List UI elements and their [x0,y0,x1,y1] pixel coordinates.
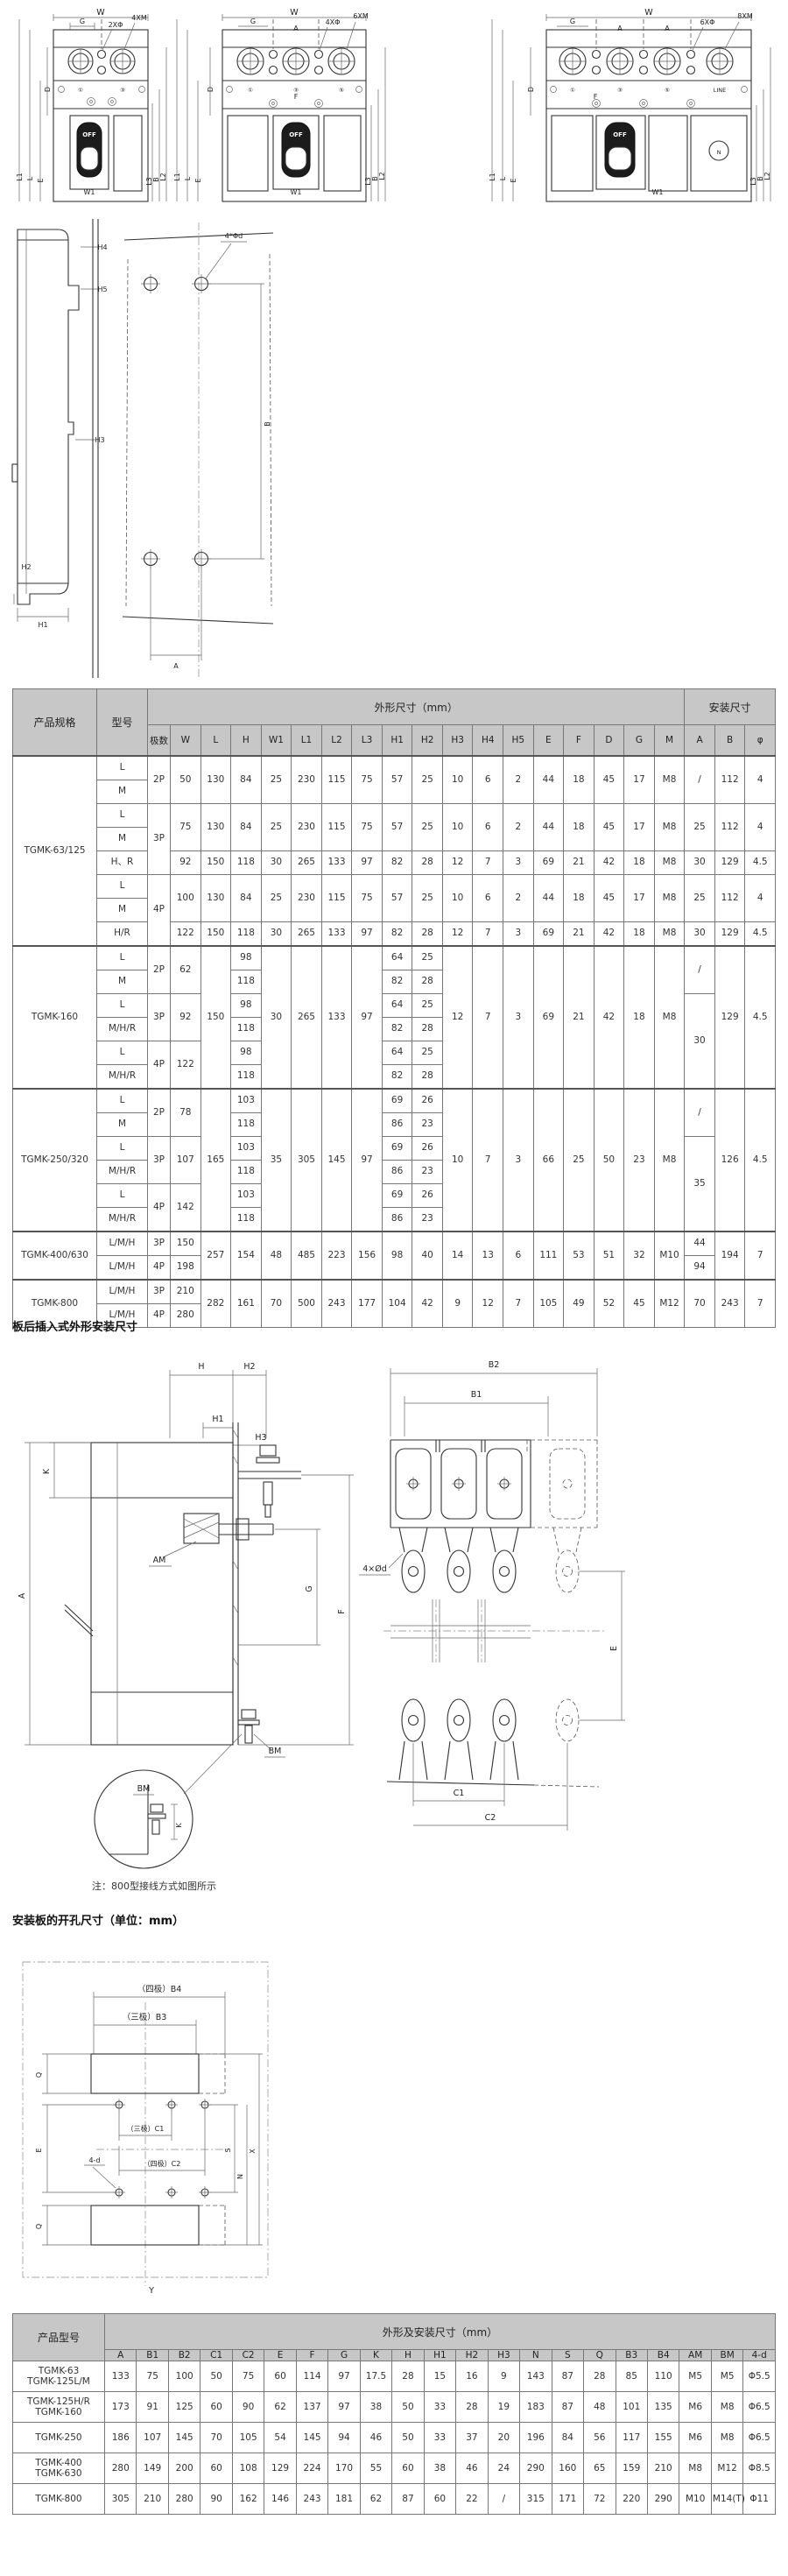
table-header-cell: 安装尺寸 [685,689,776,725]
table-data-cell: 18 [564,756,595,804]
table-data-cell: 46 [456,2453,488,2484]
table-data-cell: 69 [382,1137,412,1161]
table-data-cell: 290 [520,2453,552,2484]
table-data-cell: 15 [424,2361,455,2392]
table-data-cell: 84 [552,2423,583,2453]
breaker-body [222,19,366,201]
table-data-cell: 24 [488,2453,519,2484]
table-data-cell: 69 [533,851,564,875]
hole-pattern [123,222,273,678]
table-data-cell: M8 [654,922,685,947]
table-data-cell: 53 [564,1232,595,1280]
table-data-cell: 161 [231,1280,262,1328]
table-data-cell: 3P [148,1137,171,1184]
table-data-cell: 129 [264,2453,296,2484]
table-data-cell: 105 [533,1280,564,1328]
dim-label: W1 [291,188,302,196]
dim-label: H4 [97,243,107,251]
table-data-cell: 105 [232,2423,264,2453]
table-header-cell: H [392,2350,424,2361]
hole-callout: 4×Ød [362,1564,387,1574]
dim-label: W1 [652,188,664,196]
dim-label: F [337,1609,347,1613]
table-data-cell: 97 [328,2361,360,2392]
table-data-cell: 6 [473,756,503,804]
dim-label: E [194,178,202,182]
table-data-cell: M12 [711,2453,742,2484]
dim-label: B [264,421,271,427]
table-data-cell: L [97,1041,148,1065]
table-data-cell: 2P [148,1089,171,1137]
table-data-cell: 9 [442,1280,473,1328]
table-data-cell: M [97,1113,148,1137]
drawing-labels: （四极）B4 （三极）B3 Q E Q （三极）C1 （四极）C2 4-d S … [35,1984,257,2296]
table-data-cell: / [685,756,715,804]
table-data-cell: 126 [714,1089,745,1232]
dim-label: D [527,87,535,92]
dim-label: L2 [159,173,167,181]
dim-label: F [294,93,299,101]
table-data-cell: TGMK-160 [13,946,97,1089]
table-data-cell: 90 [201,2484,232,2515]
table-data-cell: 28 [412,1065,443,1090]
table-data-cell: 18 [564,875,595,922]
table-data-cell: 25 [261,756,292,804]
table-data-cell: 18 [624,851,655,875]
table-header-cell: 产品规格 [13,689,97,757]
table-data-cell: 25 [412,875,443,922]
table-data-cell: 82 [382,970,412,994]
table-data-cell: TGMK-400 TGMK-630 [13,2453,105,2484]
dim-label: G [570,18,575,25]
table-header-cell: H4 [473,725,503,757]
table-header-cell: D [594,725,624,757]
table-data-cell: 171 [552,2484,583,2515]
table-data-cell: M8 [654,756,685,804]
table-data-cell: 91 [137,2392,168,2423]
table-data-cell: 82 [382,922,412,947]
table-data-cell: 86 [382,1161,412,1184]
table-header-cell: H2 [412,725,443,757]
table-data-cell: H、R [97,851,148,875]
table-header-cell: B3 [616,2350,647,2361]
table-data-cell: 156 [352,1232,383,1280]
table-data-cell: 90 [232,2392,264,2423]
table-data-cell: 22 [456,2484,488,2515]
table-data-cell: 3 [503,946,534,1089]
dim-label: W [290,8,299,18]
table-header-cell: L3 [352,725,383,757]
table-data-cell: 196 [520,2423,552,2453]
table-data-cell: 60 [392,2453,424,2484]
table-data-cell: 210 [137,2484,168,2515]
note-800-wiring: 注：800型接线方式如图所示 [92,1879,216,1893]
dim-label: Y [148,2286,154,2296]
table-data-cell: 25 [564,1089,595,1232]
dim-label: H1 [212,1415,223,1424]
table-data-cell: 10 [442,756,473,804]
table-data-cell: 6 [473,804,503,851]
table-header-cell: 外形尺寸（mm） [148,689,685,725]
table-data-cell: L [97,804,148,828]
table-data-cell: 28 [412,970,443,994]
dim-label: B2 [489,1360,500,1370]
table-data-cell: 50 [392,2423,424,2453]
table-data-cell: 198 [171,1256,201,1281]
hole-callout: 4*Φd [225,232,243,240]
table-data-cell: 305 [105,2484,137,2515]
table-data-cell: 54 [264,2423,296,2453]
table-data-cell: TGMK-400/630 [13,1232,97,1280]
table-data-cell: 101 [616,2392,647,2423]
table-header-cell: E [264,2350,296,2361]
dim-label: E [35,2148,43,2152]
table-data-cell: 485 [292,1232,322,1280]
table-data-cell: 290 [647,2484,679,2515]
table-data-cell: 3 [503,922,534,947]
table-data-cell: M8 [654,851,685,875]
front-view-2p-drawing: W G 2XΦ 4XM D L1 L E L3 B L2 W1 ① ③ OFF [14,5,172,201]
table-data-cell: 280 [171,1304,201,1328]
table-data-cell: 7 [473,851,503,875]
dim-label: H [198,1362,204,1372]
table-data-cell: 20 [488,2423,519,2453]
table-data-cell: 3P [148,1232,171,1256]
table-data-cell: 69 [533,922,564,947]
dim-label: BM [137,1784,151,1794]
table-data-cell: Φ11 [743,2484,776,2515]
plate-cutout-drawing: （四极）B4 （三极）B3 Q E Q （三极）C1 （四极）C2 4-d S … [18,1932,280,2298]
table-data-cell: TGMK-63 TGMK-125L/M [13,2361,105,2392]
table-data-cell: 57 [382,804,412,851]
table-data-cell: 92 [171,994,201,1041]
table-data-cell: 149 [137,2453,168,2484]
dim-label: D [207,87,215,92]
dim-label: L2 [378,172,386,180]
table-data-cell: 66 [533,1089,564,1232]
dim-label: L1 [16,173,24,181]
table-data-cell: 3 [503,851,534,875]
table-data-cell: 129 [714,851,745,875]
hole-callout: 4XΦ [326,18,341,26]
table-data-cell: 55 [360,2453,391,2484]
table-data-cell: L/M/H [97,1256,148,1281]
table-data-cell: 2 [503,756,534,804]
table-header-cell: A [105,2350,137,2361]
table-data-cell: 3 [503,1089,534,1232]
table-data-cell: 17 [624,756,655,804]
dim-label: A [665,25,670,32]
table-data-cell: 56 [584,2423,616,2453]
table-data-cell: 62 [360,2484,391,2515]
side-view-and-hole-pattern-drawing: H4 H5 H3 H2 H1 4*Φd B A [12,205,301,685]
table-data-cell: 23 [412,1208,443,1232]
table-data-cell: M [97,780,148,804]
table-data-cell: 60 [201,2392,232,2423]
table-data-cell: 50 [594,1089,624,1232]
breaker-body [53,19,148,201]
table-data-cell: 75 [352,875,383,922]
dim-label: A [293,25,299,32]
table-data-cell: 51 [594,1232,624,1280]
table-data-cell: 145 [321,1089,352,1232]
table-data-cell: 115 [321,756,352,804]
table-data-cell: M/H/R [97,1161,148,1184]
table-data-cell: 23 [412,1113,443,1137]
table-header-cell: B2 [168,2350,200,2361]
table-data-cell: 3P [148,804,171,875]
table-data-cell: 18 [564,804,595,851]
table-data-cell: 118 [231,970,262,994]
section-title-rear-insertion: 板后插入式外形安装尺寸 [12,1317,137,1334]
table-data-cell: 143 [520,2361,552,2392]
table-data-cell: L [97,994,148,1018]
table-data-cell: 177 [352,1280,383,1328]
table-data-cell: 7 [745,1232,776,1280]
table-data-cell: 170 [328,2453,360,2484]
spec-table: 产品规格型号外形尺寸（mm）安装尺寸极数WLHW1L1L2L3H1H2H3H4H… [12,688,776,1328]
table-data-cell: 4 [745,875,776,922]
table-data-cell: 28 [456,2392,488,2423]
table-data-cell: 223 [321,1232,352,1280]
table-data-cell: 86 [382,1113,412,1137]
table-data-cell: / [685,946,715,994]
table-data-cell: 243 [321,1280,352,1328]
table-data-cell: 12 [473,1280,503,1328]
table-data-cell: 17 [624,875,655,922]
table-header-cell: C2 [232,2350,264,2361]
table-data-cell: 30 [685,994,715,1090]
table-data-cell: 49 [564,1280,595,1328]
table-data-cell: 118 [231,1161,262,1184]
table-data-cell: 160 [552,2453,583,2484]
table-data-cell: 84 [231,804,262,851]
table-header-cell: F [564,725,595,757]
table-data-cell: 150 [201,851,231,875]
table-data-cell: 98 [382,1232,412,1280]
table-data-cell: M8 [654,946,685,1089]
table-header-cell: W [171,725,201,757]
table-data-cell: 70 [261,1280,292,1328]
table-data-cell: 30 [261,922,292,947]
table-data-cell: 280 [168,2484,200,2515]
table-data-cell: 60 [201,2453,232,2484]
dim-label: Q [35,2072,43,2078]
table-data-cell: 150 [171,1232,201,1256]
table-data-cell: 46 [360,2423,391,2453]
table-data-cell: 30 [261,851,292,875]
table-data-cell: 60 [424,2484,455,2515]
table-data-cell: 45 [624,1280,655,1328]
table-data-cell: 32 [624,1232,655,1280]
table-data-cell: 103 [231,1184,262,1208]
pole-number: ⑤ [665,87,670,94]
table-data-cell: 112 [714,756,745,804]
table-data-cell: 97 [352,922,383,947]
table-data-cell: 12 [442,922,473,947]
table-data-cell: 42 [594,922,624,947]
table-data-cell: 110 [647,2361,679,2392]
table-data-cell: M8 [711,2423,742,2453]
table-header-cell: E [533,725,564,757]
table-data-cell: 112 [714,875,745,922]
table-data-cell: 243 [714,1280,745,1328]
table-data-cell: 69 [382,1184,412,1208]
line-marking: LINE [714,87,727,94]
table-data-cell: 35 [261,1089,292,1232]
table-data-cell: M10 [654,1232,685,1280]
table-data-cell: 107 [137,2423,168,2453]
table-data-cell: 12 [442,946,473,1089]
table-data-cell: 7 [473,946,503,1089]
table-data-cell: 25 [261,804,292,851]
dim-label: （四极）B4 [137,1984,182,1994]
table-data-cell: 23 [624,1089,655,1232]
table-data-cell: 7 [473,922,503,947]
dim-label: W [96,8,105,18]
table-data-cell: 25 [412,946,443,970]
table-data-cell: 52 [594,1280,624,1328]
dim-label: L [26,176,34,180]
table-data-cell: M12 [654,1280,685,1328]
table-data-cell: 64 [382,1041,412,1065]
table-data-cell: 57 [382,875,412,922]
table-data-cell: 57 [382,756,412,804]
table-data-cell: 50 [392,2392,424,2423]
table-data-cell: 10 [442,875,473,922]
dim-label: G [250,18,256,25]
table-header-cell: G [328,2350,360,2361]
table-data-cell: 25 [412,756,443,804]
dim-label: H3 [255,1433,266,1443]
table-header-cell: W1 [261,725,292,757]
table-data-cell: M [97,828,148,851]
table-data-cell: L/M/H [97,1232,148,1256]
table-header-cell: B4 [647,2350,679,2361]
dim-label: K [175,1823,183,1828]
table-data-cell: 7 [745,1280,776,1328]
table-data-cell: 50 [201,2361,232,2392]
table-data-cell: 69 [533,946,564,1089]
front-view-3p-drawing: W G A 4XΦ 6XM D F L1 L E L3 B L2 W1 ① ③ … [172,5,390,201]
table-data-cell: 26 [412,1184,443,1208]
pole-number: ⑤ [339,87,344,94]
dim-label: F [594,93,598,101]
table-data-cell: 220 [616,2484,647,2515]
table-data-cell: 33 [424,2423,455,2453]
table-data-cell: 28 [412,851,443,875]
dim-label: K [42,1468,52,1474]
table-data-cell: 125 [168,2392,200,2423]
table-data-cell: 87 [552,2392,583,2423]
table-data-cell: 7 [473,1089,503,1232]
dim-label: BM [269,1747,282,1756]
table-data-cell: 87 [392,2484,424,2515]
table-data-cell: M8 [654,804,685,851]
table-data-cell: 122 [171,922,201,947]
off-marking: OFF [82,131,96,138]
table-data-cell: / [488,2484,519,2515]
table-data-cell: H/R [97,922,148,947]
table-data-cell: 97 [352,851,383,875]
table-data-cell: 13 [473,1232,503,1280]
table-header-cell: H3 [442,725,473,757]
table-data-cell: 60 [264,2361,296,2392]
dim-label: （四极）C2 [144,2159,181,2168]
table-data-cell: 150 [201,922,231,947]
table-data-cell: 137 [296,2392,327,2423]
table-data-cell: 4 [745,804,776,851]
table-data-cell: 315 [520,2484,552,2515]
table-header-cell: 产品型号 [13,2314,105,2361]
table-data-cell: 44 [533,875,564,922]
table-data-cell: 86 [382,1208,412,1232]
table-data-cell: TGMK-800 [13,2484,105,2515]
table-data-cell: 25 [412,1041,443,1065]
table-data-cell: 159 [616,2453,647,2484]
dim-label: （三极）B3 [123,2012,167,2022]
dim-label: H3 [95,436,104,444]
table-data-cell: 25 [685,875,715,922]
table-data-cell: M6 [679,2423,711,2453]
table-data-cell: 103 [231,1137,262,1161]
table-data-cell: M [97,899,148,922]
dim-label: G [80,18,85,25]
dim-label: W [644,8,653,18]
table-header-cell: φ [745,725,776,757]
table-data-cell: 130 [201,875,231,922]
table-data-cell: 142 [171,1184,201,1232]
table-data-cell: 162 [232,2484,264,2515]
table-header-cell: BM [711,2350,742,2361]
pole-number: ③ [120,87,125,94]
table-data-cell: 45 [594,875,624,922]
table-data-cell: 115 [321,804,352,851]
table-data-cell: 75 [232,2361,264,2392]
table-data-cell: 25 [412,804,443,851]
table-data-cell: 230 [292,756,322,804]
table-data-cell: 75 [171,804,201,851]
table-data-cell: 173 [105,2392,137,2423]
table-header-cell: H1 [424,2350,455,2361]
table-data-cell: 9 [488,2361,519,2392]
table-data-cell: 33 [424,2392,455,2423]
table-data-cell: 107 [171,1137,201,1184]
spec-sheet-page: W G 2XΦ 4XM D L1 L E L3 B L2 W1 ① ③ OFF [0,0,788,2576]
table-data-cell: 130 [201,756,231,804]
table-data-cell: Φ8.5 [743,2453,776,2484]
table-data-cell: 69 [382,1089,412,1113]
table-data-cell: 230 [292,804,322,851]
table-header-cell: AM [679,2350,711,2361]
table-data-cell: 129 [714,946,745,1089]
pole-number: ③ [293,87,299,94]
table-data-cell: M [97,970,148,994]
table-data-cell: 224 [296,2453,327,2484]
table-data-cell: 165 [201,1089,231,1232]
dim-label: （三极）C1 [127,2124,165,2133]
table-data-cell: 97 [352,1089,383,1232]
dim-label: L [499,176,507,180]
thread-callout: 4XM [131,14,147,22]
table-data-cell: 3P [148,1280,171,1304]
table-data-cell: 64 [382,994,412,1018]
table-data-cell: 118 [231,1065,262,1090]
dim-label: L [184,176,192,180]
front-view-4p-drawing: W G A A 6XΦ 8XM D F L1 L E L3 B L2 W1 ① … [487,5,776,201]
table-data-cell: 28 [412,922,443,947]
table-data-cell: 114 [296,2361,327,2392]
